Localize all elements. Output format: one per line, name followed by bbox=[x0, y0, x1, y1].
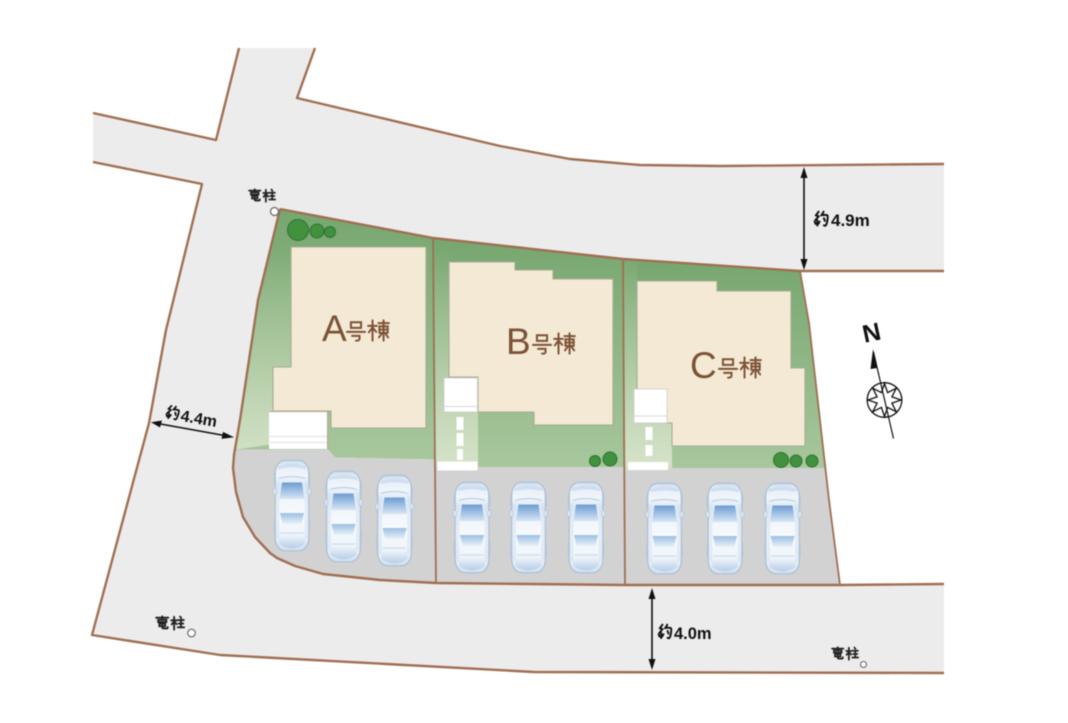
svg-text:4.9m: 4.9m bbox=[831, 211, 870, 230]
svg-text:B: B bbox=[506, 321, 531, 362]
svg-text:N: N bbox=[860, 318, 883, 349]
svg-text:4.0m: 4.0m bbox=[674, 625, 712, 643]
svg-text:C: C bbox=[690, 345, 717, 386]
svg-text:A: A bbox=[322, 308, 347, 349]
